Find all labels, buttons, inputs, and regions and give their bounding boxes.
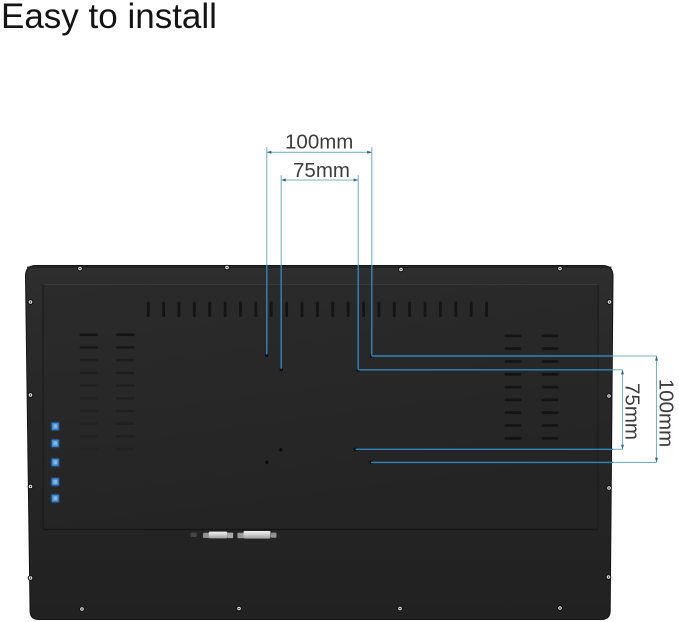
svg-text:75mm: 75mm [620,383,643,440]
svg-text:75mm: 75mm [293,159,350,182]
svg-text:100mm: 100mm [654,379,677,447]
svg-text:100mm: 100mm [285,131,353,154]
